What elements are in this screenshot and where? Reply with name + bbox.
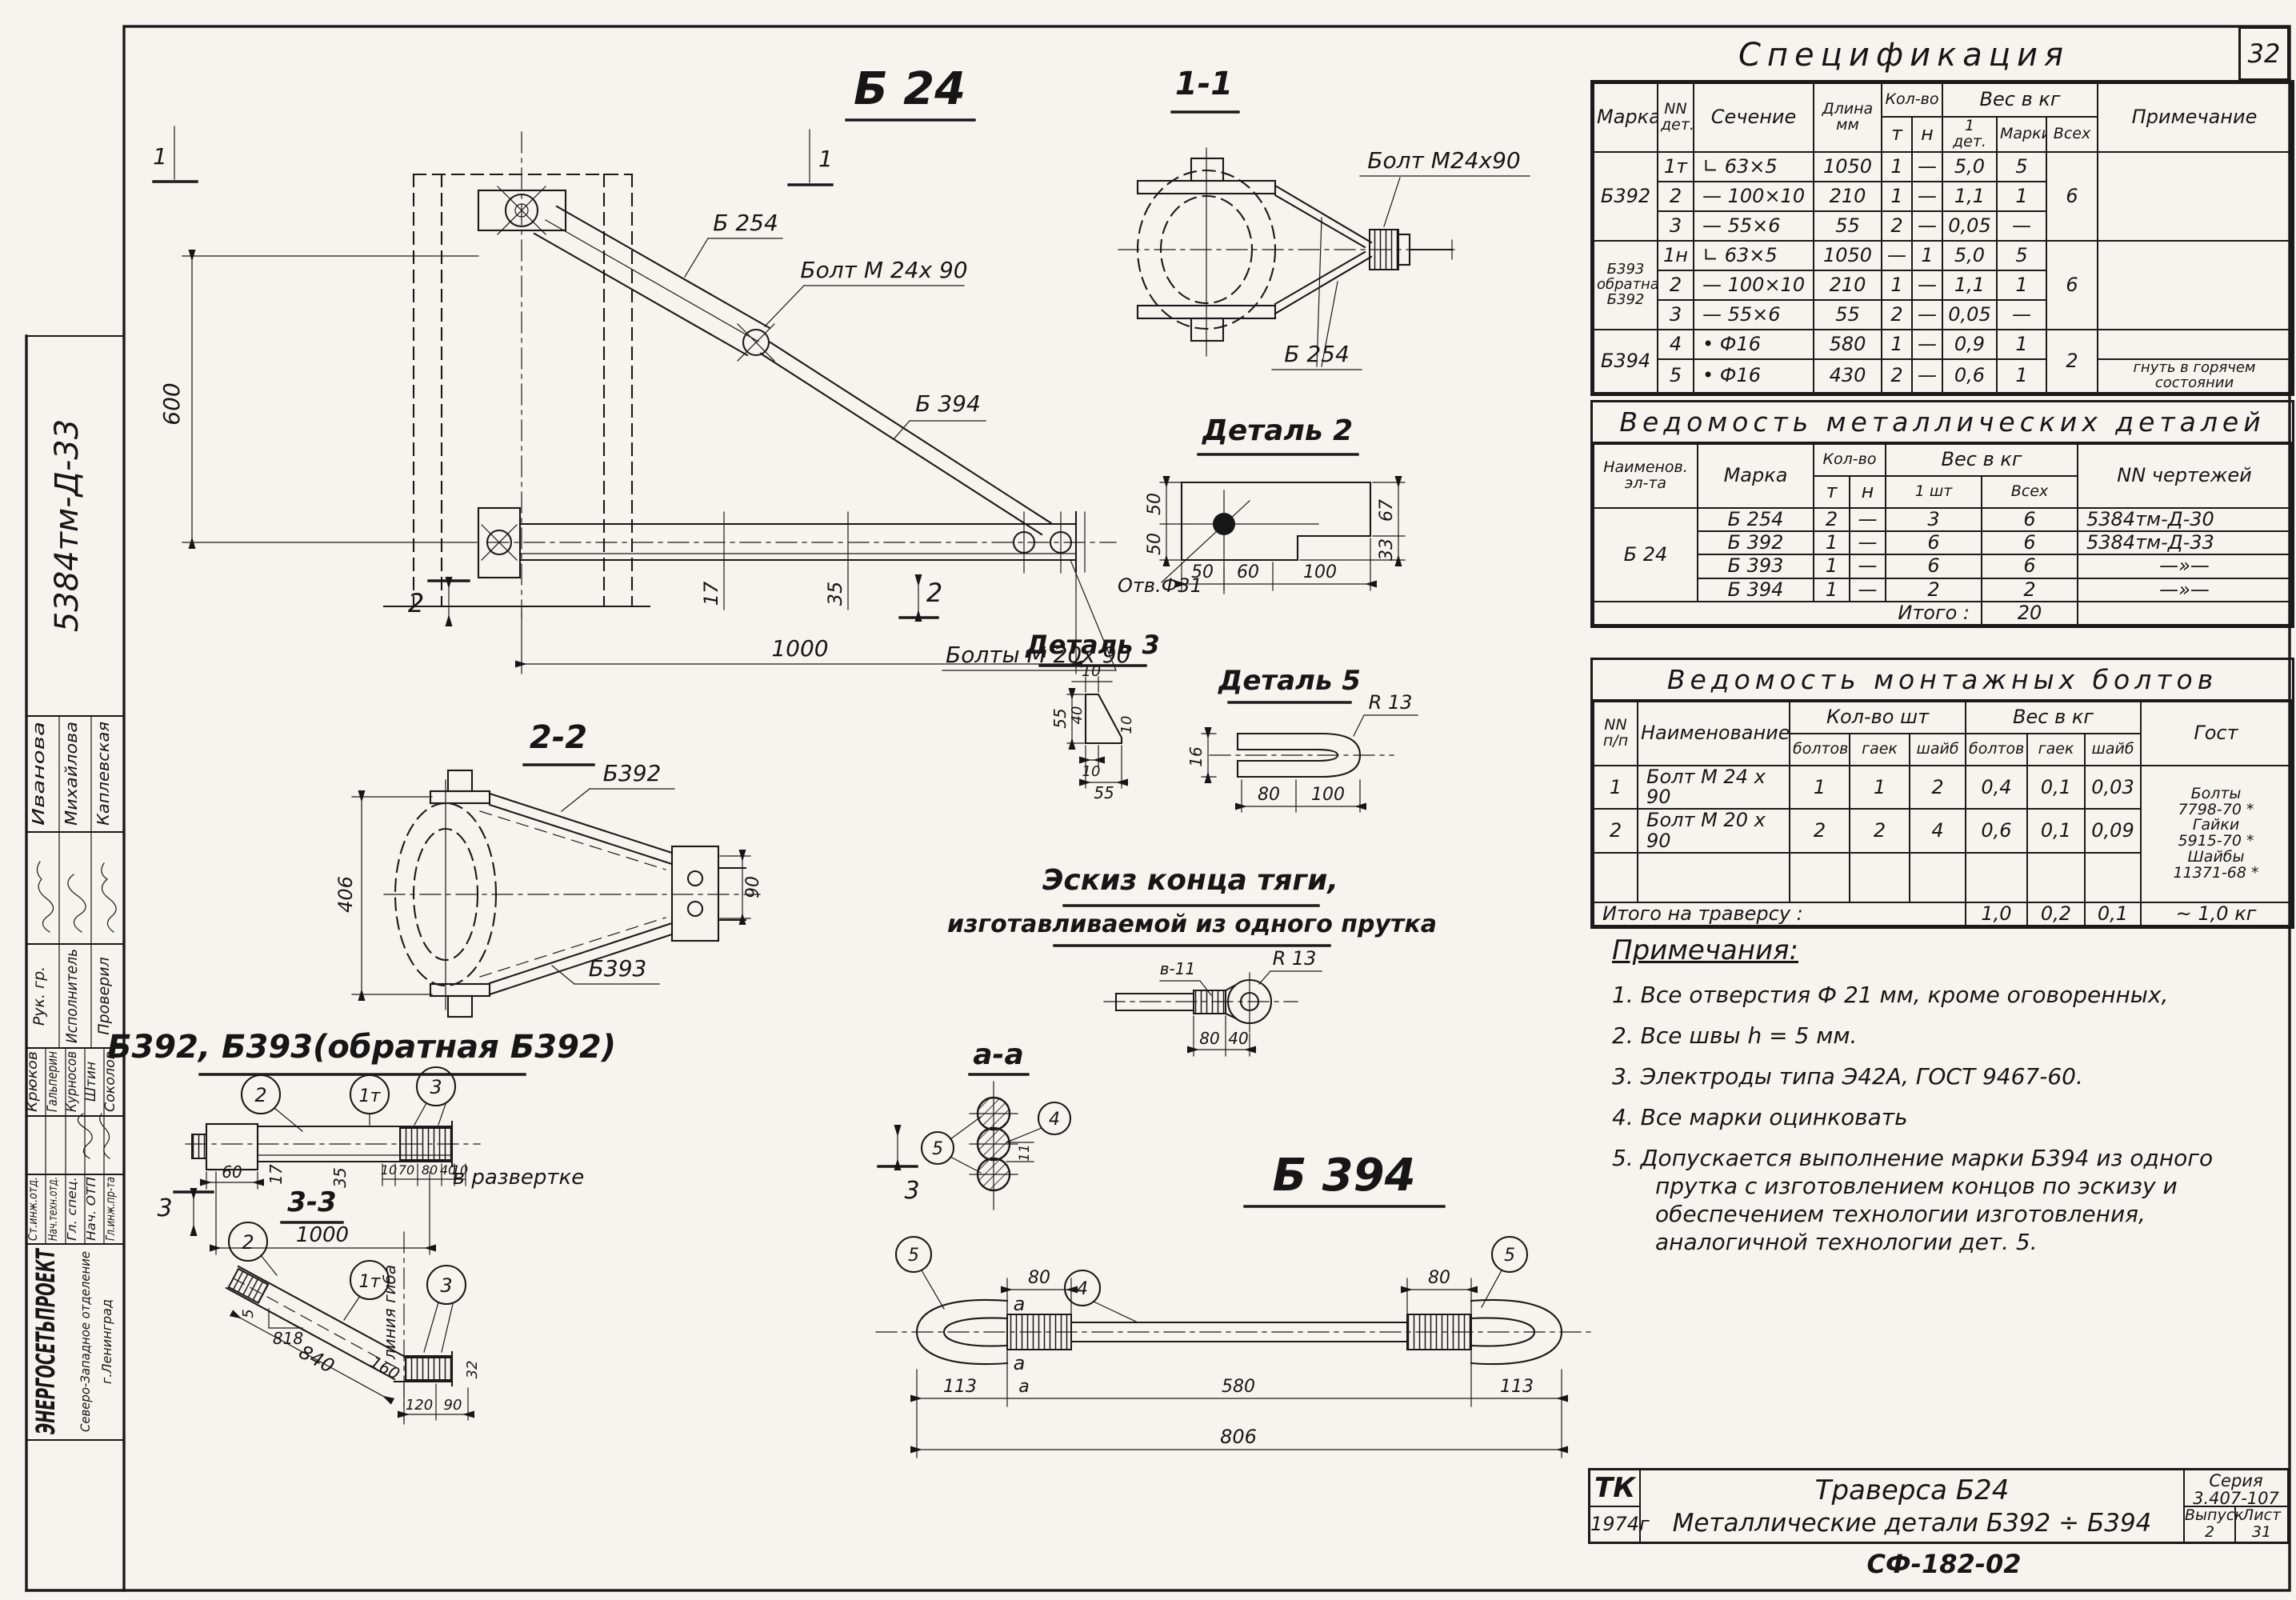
table-cell: 2 — [1594, 809, 1638, 852]
view-1-1: 1-1 Болт М24х90 Б 254 — [1118, 66, 1530, 370]
col-header: Наименов. эл-та — [1594, 444, 1698, 508]
part-label: Болт М 24х 90 — [800, 257, 967, 283]
table-title: Ведомость металлических деталей — [1593, 402, 2292, 443]
beam — [478, 508, 1116, 578]
table-title: Ведомость монтажных болтов — [1593, 660, 2292, 701]
stamp-role: Гл. спец. — [65, 1177, 79, 1241]
note-item: 3. Электроды типа Э42А, ГОСТ 9467-60. — [1612, 1062, 2280, 1090]
stamp-name: Михайлова — [62, 722, 81, 826]
detail-2: Деталь 2 Отв.Ф31 50 50 50 60 100 67 33 — [1118, 414, 1405, 597]
table-cell: 5,0 — [1942, 241, 1997, 270]
detail-5: Деталь 5 R 13 16 80 100 — [1186, 665, 1418, 812]
col-header: т — [1814, 476, 1850, 508]
table-cell: 0,05 — [1942, 300, 1997, 330]
table-cell: 1,1 — [1942, 270, 1997, 300]
table-cell: Б 392 — [1698, 531, 1814, 554]
table-cell — [2098, 241, 2291, 330]
note-item: 4. Все марки оцинковать — [1612, 1103, 2280, 1131]
table-cell: 6 — [1886, 531, 1982, 554]
group-title: Б392, Б393(обратная Б392) — [107, 1029, 616, 1066]
stamp-role: Рук. гр. — [30, 966, 48, 1026]
table-cell: Б392 — [1594, 152, 1658, 241]
table-cell: 1 — [1850, 766, 1910, 809]
table-cell: 0,1 — [2027, 766, 2085, 809]
table-cell: ~ 1,0 кг — [2141, 902, 2291, 926]
dim-label: а — [1018, 1377, 1029, 1397]
col-header: Примечание — [2098, 83, 2291, 152]
dim-label: в развертке — [453, 1166, 585, 1190]
table-cell: 210 — [1814, 182, 1882, 211]
dim-label: 55 — [1050, 708, 1070, 728]
table-cell: Болты 7798-70 * Гайки 5915-70 * Шайбы 11… — [2141, 766, 2291, 902]
col-header: болтов — [1790, 734, 1850, 766]
col-header: т — [1882, 117, 1912, 152]
dim-label: 70 — [398, 1162, 414, 1178]
table-cell: 0,9 — [1942, 330, 1997, 359]
dim-label: 120 — [406, 1397, 433, 1414]
table-cell: 2 — [1850, 809, 1910, 852]
table-cell: 3 — [1886, 508, 1982, 531]
col-header: н — [1912, 117, 1942, 152]
dim-label: 17 — [700, 581, 722, 606]
table-cell: — — [1912, 300, 1942, 330]
issue-value: 2 — [2205, 1523, 2214, 1541]
table-cell: —»— — [2078, 578, 2291, 602]
table-cell: 2 — [1882, 359, 1912, 393]
title-block-line2: Металлические детали Б392 ÷ Б394 — [1641, 1509, 2183, 1538]
title-block: ТК 1974г Траверса Б24 Металлические дета… — [1588, 1468, 2290, 1544]
table-cell: 1 — [1882, 152, 1912, 182]
part-label: Болт М24х90 — [1367, 147, 1520, 174]
table-cell: гнуть в горячем состоянии — [2098, 359, 2291, 393]
svg-text:3: 3 — [157, 1194, 172, 1222]
view-title: 2-2 — [530, 719, 587, 756]
note-item: 5. Допускается выполнение марки Б394 из … — [1612, 1144, 2280, 1256]
dim-label: 10 — [1082, 763, 1101, 780]
table-cell: 2 — [1658, 270, 1694, 300]
dim-label: 406 — [334, 876, 357, 913]
tie-b394 — [761, 342, 1051, 534]
table-cell: 2 — [1882, 300, 1912, 330]
balloon: 4 — [1077, 1279, 1088, 1299]
svg-text:1000: 1000 — [771, 635, 828, 662]
balloon: 5 — [932, 1139, 943, 1159]
view-title: Деталь 3 — [1025, 630, 1159, 660]
table-cell: 2 — [1886, 578, 1982, 602]
table-cell: 580 — [1814, 330, 1882, 359]
svg-text:1: 1 — [818, 146, 833, 172]
stamp-name: Иванова — [29, 722, 48, 826]
dim-label: 100 — [1303, 562, 1337, 582]
table-cell: — 100×10 — [1694, 270, 1814, 300]
table-cell: Болт М 20 х 90 — [1638, 809, 1790, 852]
dim-label: 100 — [1311, 785, 1345, 805]
table-cell: — — [1997, 211, 2046, 241]
part-label: Б392 — [603, 760, 662, 786]
part-label: Б393 — [589, 955, 647, 982]
dim-label: 40 — [1069, 706, 1086, 725]
dim-label: 33 — [1377, 538, 1397, 561]
stamp-role: Ст.инж.отд. — [26, 1177, 40, 1241]
table-cell: 5 — [1997, 152, 2046, 182]
table-cell: 6 — [2046, 152, 2098, 241]
hole-label: Отв.Ф31 — [1118, 574, 1202, 597]
radius-label: R 13 — [1369, 691, 1413, 714]
col-header: Кол-во шт — [1790, 702, 1966, 734]
b392-elevation: 2 1т 3 60 17 35 10 70 80 40 10 в р — [157, 1067, 919, 1254]
col-header: NN дет. — [1658, 83, 1694, 152]
table-cell: 0,6 — [1942, 359, 1997, 393]
table-cell: Итого на траверсу : — [1594, 902, 1966, 926]
table-cell: 1 — [1882, 330, 1912, 359]
main-view: Б 24 1 1 — [153, 63, 1130, 674]
stamp-role: Гл.инж.пр-та — [103, 1177, 118, 1241]
table-cell: 6 — [2046, 241, 2098, 330]
svg-text:600: 600 — [158, 382, 185, 425]
table-cell: ∟ 63×5 — [1694, 241, 1814, 270]
table-cell — [1966, 853, 2027, 902]
balloon: 3 — [440, 1274, 452, 1297]
dim-label: 10 — [1082, 662, 1101, 680]
page-number: 32 — [2248, 38, 2281, 69]
table-cell: 6 — [1982, 531, 2078, 554]
table-cell: 20 — [1982, 602, 2078, 625]
stamp-role: Нач.техн.отд. — [46, 1177, 60, 1241]
page-number-box: 32 — [2238, 26, 2290, 81]
table-cell — [1594, 853, 1638, 902]
col-header: Всех — [1982, 476, 2078, 508]
col-header: Марка — [1594, 83, 1658, 152]
title-block-tk: ТК — [1590, 1470, 1641, 1507]
table-cell: 2 — [1790, 809, 1850, 852]
table-cell: Б393 обратная Б392 — [1594, 241, 1658, 330]
dim-label: 35 — [330, 1167, 350, 1187]
top-clamp — [478, 186, 566, 234]
view-title: Б 394 — [1272, 1150, 1415, 1202]
col-header: Кол-во — [1882, 83, 1942, 117]
dim-label: 113 — [943, 1377, 977, 1397]
col-header: 1 шт — [1886, 476, 1982, 508]
table-cell: — — [1850, 554, 1886, 578]
table-cell: 1 — [1814, 554, 1850, 578]
table-cell: 1 — [1912, 241, 1942, 270]
section-mark-a: а — [1014, 1293, 1026, 1315]
view-title: а-а — [973, 1038, 1024, 1071]
dim-label: 32 — [464, 1361, 481, 1379]
table-cell: Болт М 24 х 90 — [1638, 766, 1790, 809]
metal-parts-table: Ведомость металлических деталей Наименов… — [1590, 400, 2294, 628]
table-cell — [2098, 152, 2291, 241]
section-mark-1: 1 1 — [153, 126, 833, 185]
signature — [37, 862, 116, 932]
table-cell: — — [1997, 300, 2046, 330]
series-value: 3.407-107 — [2193, 1489, 2279, 1508]
sheet-value: 31 — [2252, 1523, 2271, 1541]
balloon: 1т — [359, 1272, 382, 1292]
dim-label: 50 — [1191, 562, 1214, 582]
col-header: NN п/п — [1594, 702, 1638, 766]
issue-label: Выпуск — [2185, 1506, 2244, 1524]
view-a-a: а-а 4 5 11 — [922, 1038, 1070, 1210]
dim-label: 113 — [1500, 1377, 1534, 1397]
table-cell: 1т — [1658, 152, 1694, 182]
col-header: Кол-во — [1814, 444, 1886, 476]
table-cell: 0,1 — [2085, 902, 2141, 926]
table-cell: 1 — [1594, 766, 1638, 809]
dim-600: 600 — [158, 256, 478, 542]
table-cell: 1 — [1997, 270, 2046, 300]
note-item: 2. Все швы h = 5 мм. — [1612, 1022, 2280, 1050]
stamp-name: Каплевская — [94, 722, 113, 826]
sketch-title-2: изготавливаемой из одного прутка — [947, 910, 1437, 938]
table-cell — [2027, 853, 2085, 902]
table-cell: 5384тм-Д-30 — [2078, 508, 2291, 531]
table-cell: 1050 — [1814, 152, 1882, 182]
view-title: 3-3 — [287, 1186, 336, 1218]
stamp-org-name: ЭНЕРГОСЕТЬПРОЕКТ — [30, 1248, 61, 1434]
specification-table: Марка NN дет. Сечение Длина мм Кол-во Ве… — [1590, 80, 2294, 396]
table-cell: 0,05 — [1942, 211, 1997, 241]
b394-view: Б 394 5 4 5 80 80 а а — [876, 1150, 1592, 1458]
view-title: Деталь 2 — [1202, 414, 1353, 447]
dim-label: 80 — [1428, 1268, 1450, 1288]
detail-3: Деталь 3 10 55 40 10 10 55 — [1025, 630, 1159, 802]
col-header: болтов — [1966, 734, 2027, 766]
col-header: Вес в кг — [1886, 444, 2078, 476]
svg-text:2: 2 — [408, 588, 424, 618]
table-cell: —»— — [2078, 554, 2291, 578]
part-label: Б 254 — [713, 210, 778, 236]
stamp-name: Крюков — [25, 1051, 41, 1112]
view-3-3: 2 1т 3 линия гиба 5 818 840 160 120 90 3… — [226, 1222, 481, 1424]
table-cell: Б 254 — [1698, 508, 1814, 531]
table-cell: 1 — [1997, 330, 2046, 359]
svg-text:3: 3 — [904, 1177, 919, 1205]
label-b392-b393: Б392, Б393(обратная Б392) — [107, 1029, 616, 1074]
col-header: NN чертежей — [2078, 444, 2291, 508]
table-cell: 1 — [1882, 182, 1912, 211]
table-cell: — — [1912, 330, 1942, 359]
spec-table-title: Спецификация — [1600, 37, 2208, 74]
dim-label: 60 — [222, 1162, 242, 1182]
table-cell: 4 — [1658, 330, 1694, 359]
dim-label: 806 — [1220, 1426, 1257, 1448]
table-cell: — — [1912, 182, 1942, 211]
table-cell: 1н — [1658, 241, 1694, 270]
title-block-line1: Траверса Б24 — [1641, 1474, 2183, 1506]
table-cell: — 55×6 — [1694, 300, 1814, 330]
dim-label: 580 — [1222, 1377, 1255, 1397]
table-cell: 6 — [1982, 508, 2078, 531]
table-cell: 1 — [1997, 359, 2046, 393]
col-header: Марка — [1698, 444, 1814, 508]
dim-label: 80 — [1258, 785, 1280, 805]
table-cell: — 100×10 — [1694, 182, 1814, 211]
dim-label: 10 — [1118, 716, 1135, 734]
table-cell: 6 — [1886, 554, 1982, 578]
table-cell: — — [1912, 152, 1942, 182]
col-header: Сечение — [1694, 83, 1814, 152]
table-cell: 2 — [1814, 508, 1850, 531]
col-header: шайб — [1910, 734, 1966, 766]
stamp-role: Исполнитель — [63, 949, 81, 1043]
table-cell: — — [1882, 241, 1912, 270]
table-cell: 6 — [1982, 554, 2078, 578]
table-cell: Б394 — [1594, 330, 1658, 393]
stamp-name: Штин — [83, 1062, 99, 1102]
table-cell: 1 — [1814, 578, 1850, 602]
table-cell: 5 — [1658, 359, 1694, 393]
dim-label: 17 — [266, 1164, 286, 1185]
table-cell: — — [1912, 359, 1942, 393]
stamp-column: 5384тм-Д-33 Иванова Михайлова Каплевская… — [25, 336, 124, 1590]
table-cell: 430 — [1814, 359, 1882, 393]
table-cell — [1790, 853, 1850, 902]
table-cell: 1,0 — [1966, 902, 2027, 926]
table-cell: Итого : — [1594, 602, 1982, 625]
svg-text:2: 2 — [926, 578, 942, 608]
table-cell: Б 24 — [1594, 508, 1698, 602]
note-item: 1. Все отверстия Ф 21 мм, кроме оговорен… — [1612, 981, 2280, 1009]
balloon: 3 — [430, 1076, 442, 1098]
table-cell: — — [1912, 270, 1942, 300]
view-title: 1-1 — [1175, 66, 1233, 102]
table-cell: 3 — [1658, 300, 1694, 330]
table-cell: Б 393 — [1698, 554, 1814, 578]
table-cell: 0,4 — [1966, 766, 2027, 809]
dim-label: 60 — [1237, 562, 1259, 582]
balloon: 5 — [908, 1246, 919, 1266]
table-cell: — 55×6 — [1694, 211, 1814, 241]
table-cell — [2085, 853, 2141, 902]
table-cell: 1050 — [1814, 241, 1882, 270]
table-cell: 0,2 — [2027, 902, 2085, 926]
dim-label: 50 — [1145, 493, 1165, 515]
stamp-org-city: г.Ленинград — [99, 1299, 114, 1384]
view-title: Б 24 — [854, 63, 966, 115]
part-label: Б 394 — [915, 390, 981, 417]
stamp-role: Проверил — [95, 957, 113, 1034]
balloon: 1т — [359, 1086, 382, 1106]
table-cell: 2 — [2046, 330, 2098, 393]
dim-label: 80 — [1028, 1268, 1050, 1288]
stamp-name: Курносов — [64, 1051, 80, 1112]
table-cell: 2 — [1882, 211, 1912, 241]
col-header: Наименование — [1638, 702, 1790, 766]
dim-label: 35 — [824, 582, 846, 606]
table-cell: — — [1850, 508, 1886, 531]
table-cell: 55 — [1814, 211, 1882, 241]
dim-label: 90 — [743, 876, 763, 898]
sheet-label: Лист — [2242, 1506, 2281, 1524]
table-cell: • Ф16 — [1694, 359, 1814, 393]
section-mark-a: а — [1014, 1352, 1026, 1374]
balloon: 2 — [242, 1231, 254, 1254]
table-cell: 0,03 — [2085, 766, 2141, 809]
view-2-2: 2-2 Б392 Б393 406 90 — [334, 719, 763, 1017]
col-header: Марки — [1997, 117, 2046, 152]
bend-line-label: линия гиба — [380, 1265, 399, 1360]
col-header: шайб — [2085, 734, 2141, 766]
col-header: 1 дет. — [1942, 117, 1997, 152]
weld-label: в-11 — [1160, 959, 1195, 978]
stamp-role: Нач. ОТП — [84, 1177, 98, 1241]
dim-label: 1000 — [296, 1223, 349, 1247]
pole — [384, 132, 650, 618]
table-cell: ∟ 63×5 — [1694, 152, 1814, 182]
table-cell — [1850, 853, 1910, 902]
dim-label: 10 — [381, 1162, 397, 1178]
dim-label: 90 — [444, 1397, 462, 1414]
table-cell: 210 — [1814, 270, 1882, 300]
title-block-year: 1974г — [1590, 1507, 1641, 1542]
balloon: 5 — [1504, 1246, 1515, 1266]
col-header: Вес в кг — [1966, 702, 2141, 734]
table-cell: 5,0 — [1942, 152, 1997, 182]
table-cell: 1,1 — [1942, 182, 1997, 211]
table-cell — [2098, 330, 2291, 359]
balloon: 2 — [254, 1084, 266, 1106]
table-cell: 1 — [1814, 531, 1850, 554]
dim-label: 11 — [1017, 1144, 1033, 1162]
table-cell: Б 394 — [1698, 578, 1814, 602]
balloon: 4 — [1049, 1110, 1060, 1130]
dim-label: 50 — [1145, 533, 1165, 555]
sketch-title-1: Эскиз конца тяги, — [1042, 864, 1338, 897]
dim-label: 40 — [1228, 1029, 1248, 1048]
dim-label: 67 — [1377, 499, 1397, 522]
table-cell: — — [1850, 531, 1886, 554]
svg-text:1: 1 — [153, 143, 167, 170]
table-cell: 1 — [1997, 182, 2046, 211]
section-mark-2: 2 2 — [408, 578, 942, 620]
table-cell — [1910, 853, 1966, 902]
table-cell: 0,1 — [2027, 809, 2085, 852]
radius-label: R 13 — [1273, 947, 1317, 970]
table-cell: 5384тм-Д-33 — [2078, 531, 2291, 554]
table-cell: 2 — [1658, 182, 1694, 211]
dim-label: 16 — [1186, 746, 1206, 766]
table-cell: 1 — [1790, 766, 1850, 809]
table-cell — [1638, 853, 1790, 902]
view-title: Деталь 5 — [1218, 665, 1361, 697]
table-cell: 55 — [1814, 300, 1882, 330]
table-cell: • Ф16 — [1694, 330, 1814, 359]
notes: Примечания: 1. Все отверстия Ф 21 мм, кр… — [1612, 934, 2280, 1269]
stamp-org-branch: Северо-Западное отделение — [78, 1251, 93, 1432]
mounting-bolts-table: Ведомость монтажных болтов NN п/п Наимен… — [1590, 658, 2294, 929]
stamp-drawing-code: 5384тм-Д-33 — [49, 419, 86, 632]
signature — [78, 1114, 110, 1158]
table-cell: 3 — [1658, 211, 1694, 241]
col-header: Вес в кг — [1942, 83, 2098, 117]
table-cell: 2 — [1982, 578, 2078, 602]
table-cell: — — [1912, 211, 1942, 241]
dim-label: 80 — [1199, 1029, 1219, 1048]
col-header: н — [1850, 476, 1886, 508]
rod-end-sketch: Эскиз конца тяги, изготавливаемой из одн… — [947, 864, 1437, 1056]
col-header: гаек — [1850, 734, 1910, 766]
dim-label: 5 — [240, 1309, 257, 1318]
table-cell: 4 — [1910, 809, 1966, 852]
table-cell: 0,09 — [2085, 809, 2141, 852]
document-number: СФ-182-02 — [1840, 1549, 2048, 1579]
dim-label: 55 — [1094, 783, 1114, 802]
table-cell: — — [1850, 578, 1886, 602]
series-label: Серия — [2209, 1471, 2262, 1490]
table-cell — [2078, 602, 2291, 625]
table-cell: 2 — [1910, 766, 1966, 809]
